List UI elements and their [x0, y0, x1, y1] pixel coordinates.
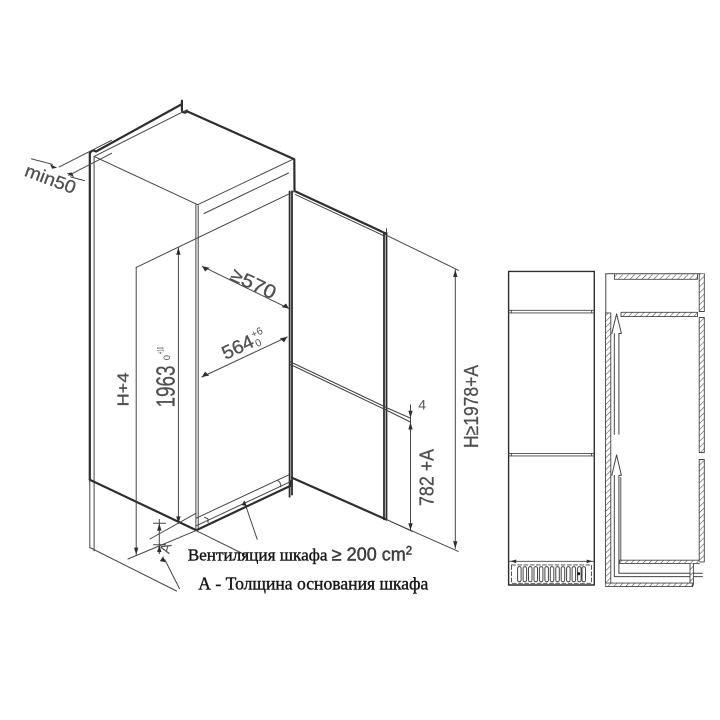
svg-text:≥570: ≥570: [227, 265, 279, 304]
svg-text:Вентиляция шкафа ≥ 200 cm2: Вентиляция шкафа ≥ 200 cm2: [188, 544, 412, 564]
svg-text:А - Толщина основания шкафа: А - Толщина основания шкафа: [198, 574, 428, 594]
svg-text:4: 4: [418, 397, 426, 413]
svg-text:0: 0: [162, 355, 173, 360]
svg-text:1963: 1963: [151, 366, 181, 408]
svg-text:H+4: H+4: [115, 372, 132, 406]
svg-text:+10: +10: [155, 347, 166, 355]
svg-text:H≥1978+A: H≥1978+A: [461, 364, 483, 448]
svg-text:min50: min50: [22, 161, 79, 198]
svg-text:782 +A: 782 +A: [417, 448, 439, 506]
